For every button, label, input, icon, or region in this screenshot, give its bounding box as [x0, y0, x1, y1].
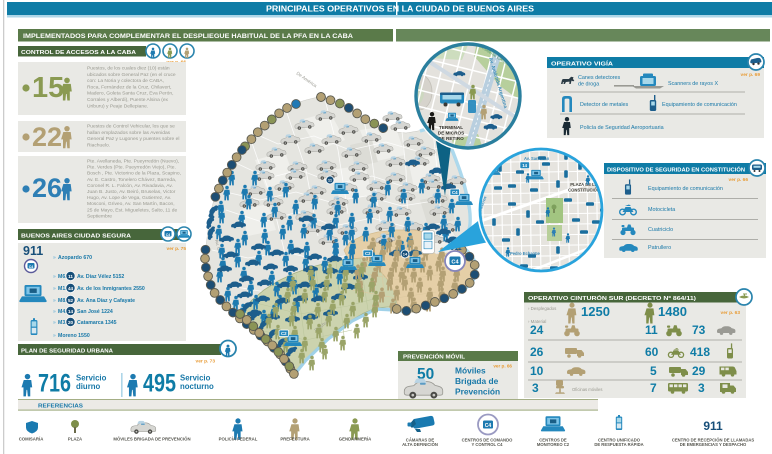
svg-text:Y CONTROL C4: Y CONTROL C4	[471, 442, 503, 447]
svg-text:REFERENCIAS: REFERENCIAS	[38, 403, 83, 409]
svg-text:25 de Mayo, Est. Migueletes, S: 25 de Mayo, Est. Migueletes, Salto, 11 d…	[87, 207, 177, 213]
svg-text:Hugo, Av. Lope de Vega, Gutier: Hugo, Av. Lope de Vega, Gutierrez, Av.	[87, 195, 171, 201]
svg-text:Coronel R. L. Falcón, Av. Riva: Coronel R. L. Falcón, Av. Rivadavia, Av.	[87, 183, 173, 189]
svg-text:Juan B. Justo, Av. Beiró, Brus: Juan B. Justo, Av. Beiró, Bruselas, Vict…	[87, 189, 176, 195]
svg-text:Pte. Verdes (Pte. Pueyrredón V: Pte. Verdes (Pte. Pueyrredón Viejo), Pte…	[87, 165, 176, 171]
svg-text:14: 14	[68, 309, 74, 314]
svg-text:»: »	[53, 298, 56, 304]
svg-text:»: »	[53, 286, 56, 292]
svg-text:DE MICROS: DE MICROS	[438, 131, 465, 136]
svg-text:Av. Díaz Vélez 5152: Av. Díaz Vélez 5152	[77, 274, 124, 280]
svg-text:C4: C4	[452, 190, 458, 195]
svg-text:DE RESPUESTA RÁPIDA: DE RESPUESTA RÁPIDA	[594, 442, 643, 447]
svg-text:C4: C4	[166, 233, 171, 237]
svg-text:Pte. Avellaneda, Pte. Pueyrred: Pte. Avellaneda, Pte. Pueyrredón (Nuevo)…	[87, 159, 179, 165]
svg-text:Av. de los Inmigrantes 2550: Av. de los Inmigrantes 2550	[77, 286, 145, 292]
svg-text:10: 10	[530, 364, 544, 378]
svg-text:Canes detectores: Canes detectores	[578, 75, 621, 81]
svg-text:Scanners de rayos X: Scanners de rayos X	[668, 81, 718, 87]
svg-text:ALTA DEFINICIÓN: ALTA DEFINICIÓN	[402, 442, 438, 447]
svg-text:3: 3	[698, 381, 705, 395]
svg-text:11: 11	[645, 323, 658, 337]
svg-text:3: 3	[532, 381, 539, 395]
svg-text:C4: C4	[29, 265, 34, 269]
svg-text:Septiembre: Septiembre	[87, 213, 112, 219]
svg-text:418: 418	[690, 345, 710, 359]
svg-text:»: »	[53, 255, 56, 261]
svg-text:Uriburu) y Peaje Dellepiane.: Uriburu) y Peaje Dellepiane.	[87, 103, 148, 109]
svg-text:11: 11	[68, 274, 73, 279]
svg-text:Patrullero: Patrullero	[648, 245, 671, 251]
svg-text:ver p. 63: ver p. 63	[721, 310, 741, 316]
svg-text:ver p. 66: ver p. 66	[729, 177, 749, 183]
svg-text:20: 20	[68, 320, 74, 325]
svg-text:C2: C2	[281, 331, 287, 336]
svg-text:Prevención: Prevención	[455, 387, 500, 397]
svg-text:ver p. 73: ver p. 73	[196, 359, 216, 365]
svg-text:MONITOREO C2: MONITOREO C2	[537, 442, 570, 447]
svg-text:»: »	[53, 320, 56, 326]
svg-text:14: 14	[522, 163, 527, 168]
svg-text:24: 24	[530, 323, 544, 337]
svg-text:Brigada de: Brigada de	[455, 376, 499, 386]
svg-text:con: La Noria y colectora de C: con: La Noria y colectora de CABA,	[87, 78, 164, 84]
svg-text:Azopardo 670: Azopardo 670	[58, 255, 92, 261]
svg-text:Madero, Goleta Santa Cruz, Eva: Madero, Goleta Santa Cruz, Eva Perón,	[87, 91, 173, 97]
svg-text:Corrales y Alberdi), Puente Al: Corrales y Alberdi), Puente Alsina (ex	[87, 97, 169, 103]
svg-text:MÓVILES BRIGADA DE PREVENCIÓN: MÓVILES BRIGADA DE PREVENCIÓN	[113, 437, 190, 442]
svg-text:Moreno 1550: Moreno 1550	[58, 333, 90, 339]
svg-text:911: 911	[23, 244, 43, 258]
svg-text:General Paz y Lugones y puente: General Paz y Lugones y puentes sobre el	[87, 136, 179, 142]
svg-text:ubicados sobre General Paz (en: ubicados sobre General Paz (en el cruce	[87, 72, 176, 78]
svg-text:OPERATIVO CINTURÓN SUR (DECRET: OPERATIVO CINTURÓN SUR (DECRETO Nº 864/1…	[528, 294, 696, 302]
svg-text:911: 911	[703, 419, 723, 433]
svg-text:Catamarca 1345: Catamarca 1345	[77, 320, 117, 326]
svg-text:PRINCIPALES OPERATIVOS EN LA C: PRINCIPALES OPERATIVOS EN LA CIUDAD DE B…	[266, 5, 534, 14]
svg-text:diurno: diurno	[76, 382, 100, 391]
svg-text:nocturno: nocturno	[180, 382, 214, 391]
svg-text:ver p. 69: ver p. 69	[741, 72, 761, 78]
svg-text:Bosch , Pte. Victorino de la P: Bosch , Pte. Victorino de la Plaza, Scap…	[87, 171, 181, 177]
svg-text:PREFECTURA: PREFECTURA	[280, 437, 309, 442]
svg-text:GENDARMERÍA: GENDARMERÍA	[339, 437, 371, 442]
svg-text:Detector de metales: Detector de metales	[580, 102, 629, 108]
svg-text:Av. Ana Díaz y Cafayate: Av. Ana Díaz y Cafayate	[77, 298, 135, 304]
svg-text:1480: 1480	[658, 304, 687, 319]
svg-text:5: 5	[650, 364, 657, 378]
svg-text:15: 15	[32, 72, 64, 104]
svg-text:de droga: de droga	[578, 82, 599, 88]
svg-text:ver p. 75: ver p. 75	[167, 246, 187, 252]
svg-text:»: »	[53, 274, 56, 280]
svg-text:CONSTITUCIÓN: CONSTITUCIÓN	[568, 188, 600, 193]
svg-text:ver p. 66: ver p. 66	[493, 364, 512, 369]
svg-text:Roca, Fernández de la Cruz, Ch: Roca, Fernández de la Cruz, Chilavert,	[87, 84, 172, 90]
svg-text:Equipamiento de comunicación: Equipamiento de comunicación	[648, 186, 723, 192]
svg-text:Cuatriciclo: Cuatriciclo	[648, 227, 673, 233]
svg-text:PLAN DE SEGURIDAD URBANA: PLAN DE SEGURIDAD URBANA	[21, 349, 113, 355]
svg-text:PLAZA: PLAZA	[68, 437, 82, 442]
svg-text:Móviles: Móviles	[455, 366, 486, 376]
svg-text:14: 14	[403, 252, 408, 257]
svg-text:Mosconi, Griveo, Av. San Martí: Mosconi, Griveo, Av. San Martín, Bacon,	[87, 201, 175, 207]
svg-text:Puestos de Control Vehicular,: Puestos de Control Vehicular, los que se	[87, 124, 175, 130]
svg-text:Av. E. Castro, Tonelero Chávez: Av. E. Castro, Tonelero Chávez, Barreda,	[87, 177, 176, 183]
svg-text:60: 60	[645, 345, 659, 359]
svg-text:BUENOS AIRES CIUDAD SEGURA: BUENOS AIRES CIUDAD SEGURA	[21, 234, 131, 240]
svg-text:716: 716	[38, 370, 71, 398]
svg-text:Equipamiento de comunicación: Equipamiento de comunicación	[662, 102, 737, 108]
svg-text:PLAZA DE LA: PLAZA DE LA	[570, 182, 598, 187]
svg-text:Motocicleta: Motocicleta	[648, 207, 675, 213]
svg-text:POLICÍA FEDERAL: POLICÍA FEDERAL	[219, 437, 258, 442]
svg-text:DE EMERGENCIAS Y DESPACHO: DE EMERGENCIAS Y DESPACHO	[680, 442, 747, 447]
svg-text:C4: C4	[485, 423, 492, 429]
svg-text:C2: C2	[365, 251, 371, 256]
svg-text:IMPLEMENTADOS PARA COMPLEMENTA: IMPLEMENTADOS PARA COMPLEMENTAR EL DESPL…	[23, 33, 353, 40]
svg-text:C4: C4	[451, 260, 459, 266]
svg-text:CONTROL DE ACCESOS A LA CABA: CONTROL DE ACCESOS A LA CABA	[21, 50, 136, 56]
svg-text:1250: 1250	[581, 304, 610, 319]
svg-text:44: 44	[68, 286, 74, 291]
svg-text:San José 1224: San José 1224	[77, 309, 113, 315]
svg-text:»: »	[53, 333, 56, 339]
svg-text:29: 29	[692, 364, 706, 378]
svg-text:22: 22	[32, 122, 62, 152]
svg-text:› Desplegados: › Desplegados	[528, 306, 557, 311]
svg-text:52: 52	[68, 298, 74, 303]
svg-text:DISPOSITIVO DE SEGURIDAD EN CO: DISPOSITIVO DE SEGURIDAD EN CONSTITUCIÓN	[607, 166, 745, 174]
svg-text:»: »	[53, 309, 56, 315]
svg-text:26: 26	[32, 173, 62, 203]
svg-text:OPERATIVO VIGÍA: OPERATIVO VIGÍA	[551, 60, 614, 68]
svg-text:Puestos, de los cuales diez (1: Puestos, de los cuales diez (10) están	[87, 66, 170, 72]
svg-text:Riachuelo.: Riachuelo.	[87, 142, 110, 148]
svg-text:PREVENCIÓN MÓVIL: PREVENCIÓN MÓVIL	[403, 353, 466, 361]
svg-text:TERMINAL: TERMINAL	[439, 125, 463, 130]
svg-text:495: 495	[143, 370, 176, 398]
svg-text:7: 7	[650, 381, 657, 395]
svg-text:hallan emplazados sobre las Av: hallan emplazados sobre las Avenidas	[87, 130, 171, 136]
svg-text:73: 73	[692, 323, 706, 337]
svg-text:COMISARÍA: COMISARÍA	[19, 437, 44, 442]
svg-text:Policía de Seguridad Aeroportu: Policía de Seguridad Aeroportuaria	[580, 125, 664, 131]
svg-text:Oficinas móviles: Oficinas móviles	[572, 387, 602, 392]
svg-text:26: 26	[530, 345, 544, 359]
